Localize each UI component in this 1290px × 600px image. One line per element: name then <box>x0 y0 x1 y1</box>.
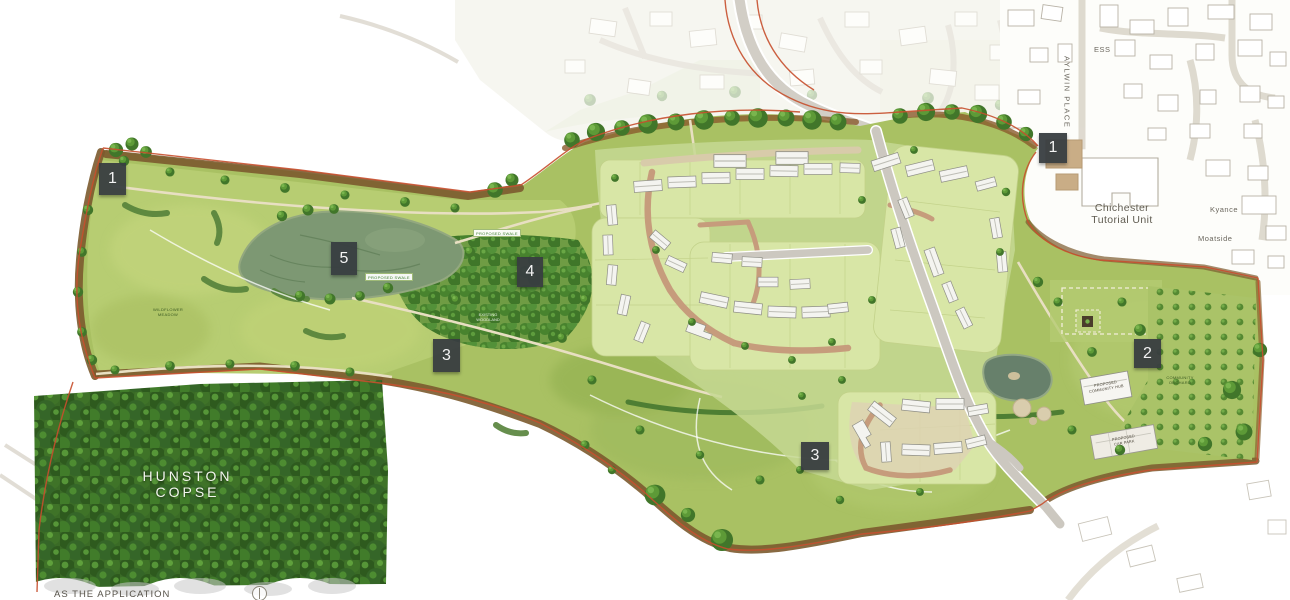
site-marker-2: 2 <box>1134 339 1161 368</box>
street-name-vertical: AYLWIN PLACE <box>1062 56 1071 140</box>
tutorial-unit-label-line2: Tutorial Unit <box>1072 214 1172 226</box>
site-map-illustration <box>0 0 1290 600</box>
site-marker-3-west: 3 <box>433 339 460 372</box>
swale-label-west: PROPOSED SWALE <box>365 273 413 281</box>
moatside-label: Moatside <box>1198 235 1232 244</box>
tutorial-unit-label-line1: Chichester <box>1072 202 1172 214</box>
hunston-copse-label: HUNSTON COPSE <box>125 468 250 500</box>
site-marker-5: 5 <box>331 242 357 275</box>
woodland-label: EXISTING WOODLAND <box>468 313 508 323</box>
kyance-label: Kyance <box>1210 206 1238 215</box>
tutorial-unit-label: Chichester Tutorial Unit <box>1072 202 1172 226</box>
meadow-label: WILDFLOWER MEADOW <box>146 308 190 318</box>
drawing-caption: AS THE APPLICATION <box>54 589 170 600</box>
hunston-copse-label-line1: HUNSTON <box>125 468 250 484</box>
masterplan-canvas: 1 1 2 3 3 4 5 HUNSTON COPSE ESS AYLWIN P… <box>0 0 1290 600</box>
north-arrow-icon <box>252 586 267 600</box>
swale-label-east: PROPOSED SWALE <box>473 229 521 237</box>
hunston-copse-label-line2: COPSE <box>125 484 250 500</box>
site-marker-4: 4 <box>517 257 543 287</box>
site-marker-3-south: 3 <box>801 442 829 470</box>
orchard-label: COMMUNITY ORCHARD <box>1158 376 1202 386</box>
site-marker-1-west: 1 <box>99 163 126 195</box>
ess-label: ESS <box>1094 46 1111 55</box>
